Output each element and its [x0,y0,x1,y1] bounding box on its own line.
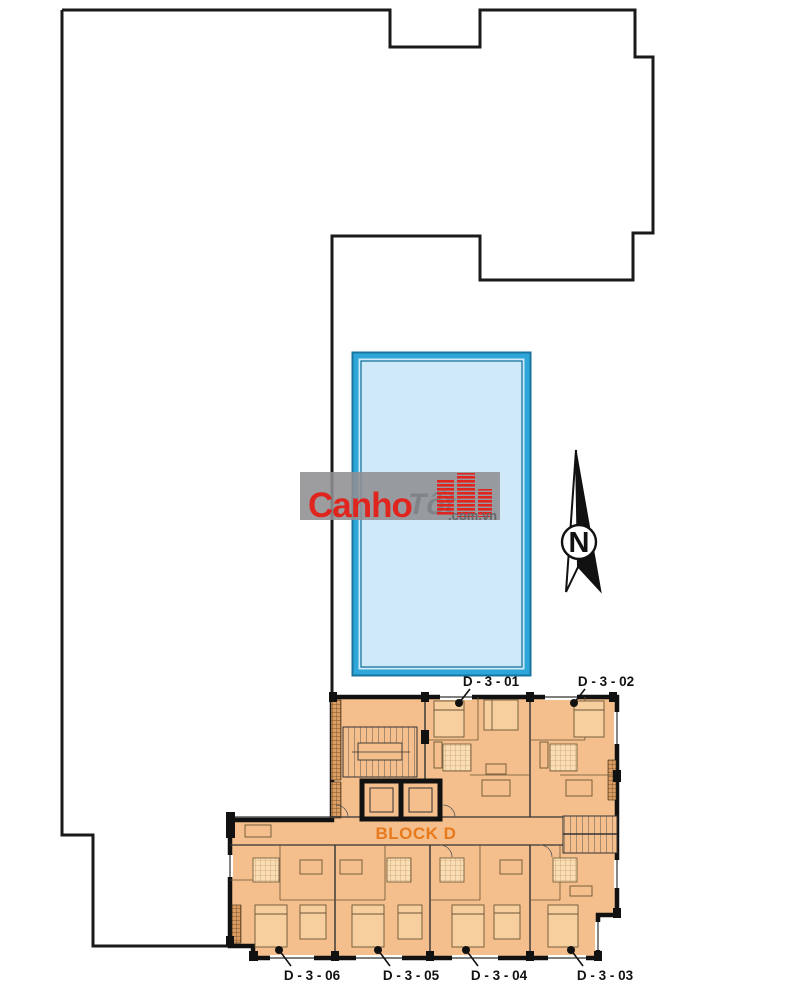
unit-label-d304: D - 3 - 04 [471,968,528,983]
watermark-suffix: .com.vn [448,508,497,523]
unit-label-d301: D - 3 - 01 [463,674,520,689]
site-plan-drawing: BLOCK D D - 3 - 01 D - 3 - 02 D - 3 - 06… [0,0,802,991]
watermark-brand: Canho [308,486,413,525]
block-label: BLOCK D [376,824,457,843]
north-label: N [569,527,590,559]
balcony-hatch-left-2 [331,782,341,818]
stairs-upper [343,727,417,777]
unit-label-d302: D - 3 - 02 [578,674,634,689]
unit-label-d305: D - 3 - 05 [383,968,440,983]
unit-label-d303: D - 3 - 03 [577,968,634,983]
watermark: Tốt Canho .com.vn [300,472,500,525]
north-arrow-right-half [576,450,601,592]
floorplan-page: BLOCK D D - 3 - 01 D - 3 - 02 D - 3 - 06… [0,0,802,991]
balcony-hatch-left [331,700,341,780]
unit-label-d306: D - 3 - 06 [284,968,341,983]
elevator-core [362,781,440,819]
stairs-right [563,816,617,853]
block-d-floorplan: BLOCK D [226,692,621,961]
north-arrow: N [562,450,601,592]
